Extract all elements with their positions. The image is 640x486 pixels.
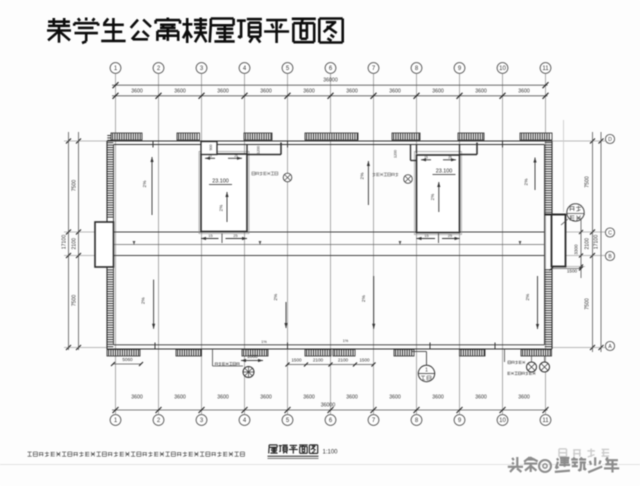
svg-text:25: 25 (448, 234, 452, 238)
svg-text:3600: 3600 (303, 395, 315, 401)
svg-text:1500: 1500 (567, 269, 578, 274)
svg-text:1:100: 1:100 (323, 450, 339, 456)
svg-text:2%: 2% (525, 293, 531, 301)
svg-text:3600: 3600 (217, 395, 229, 401)
svg-text:2%: 2% (430, 194, 435, 201)
svg-text:D: D (608, 137, 612, 143)
svg-text:23.100: 23.100 (212, 179, 229, 185)
svg-text:3600: 3600 (174, 395, 186, 401)
svg-text:15: 15 (208, 154, 212, 158)
svg-text:3600: 3600 (217, 89, 229, 95)
svg-text:3600: 3600 (389, 395, 401, 401)
svg-text:17100: 17100 (62, 235, 68, 250)
svg-text:3600: 3600 (346, 395, 358, 401)
svg-text:15: 15 (424, 156, 428, 160)
svg-text:2100: 2100 (313, 358, 324, 363)
svg-text:2%: 2% (360, 172, 366, 180)
svg-text:2%: 2% (524, 178, 530, 186)
svg-text:1%: 1% (343, 339, 349, 343)
svg-text:7500: 7500 (585, 176, 591, 188)
svg-text:1: 1 (425, 368, 428, 374)
svg-text:1%: 1% (261, 340, 267, 344)
svg-text:C: C (608, 230, 612, 236)
svg-text:1200: 1200 (394, 150, 398, 158)
svg-text:2000: 2000 (247, 354, 258, 359)
svg-text:3600: 3600 (432, 89, 444, 95)
svg-text:2%: 2% (141, 297, 147, 305)
svg-text:7500: 7500 (72, 295, 78, 307)
svg-text:3600: 3600 (389, 89, 401, 95)
svg-text:3300: 3300 (574, 244, 579, 255)
svg-text:25: 25 (233, 234, 237, 238)
svg-text:900: 900 (209, 145, 213, 151)
svg-text:15: 15 (424, 234, 428, 238)
svg-text:2100: 2100 (585, 238, 591, 250)
svg-text:15: 15 (208, 234, 212, 238)
svg-text:3600: 3600 (432, 395, 444, 401)
svg-text:2%: 2% (219, 205, 224, 212)
svg-text:17100: 17100 (594, 235, 600, 250)
svg-text:2100: 2100 (72, 238, 78, 250)
svg-text:2%: 2% (273, 293, 279, 301)
svg-text:11: 11 (542, 418, 549, 424)
svg-text:1500: 1500 (359, 358, 370, 363)
svg-text:3600: 3600 (303, 89, 315, 95)
svg-text:11: 11 (542, 66, 549, 72)
svg-text:7500: 7500 (72, 180, 78, 192)
svg-text:3600: 3600 (475, 89, 487, 95)
svg-text:25: 25 (234, 154, 238, 158)
svg-text:10: 10 (499, 418, 506, 424)
svg-text:7500: 7500 (585, 298, 591, 310)
svg-text:2%: 2% (142, 180, 148, 188)
svg-text:3600: 3600 (174, 89, 186, 95)
svg-text:10: 10 (499, 66, 506, 72)
svg-text:3600: 3600 (260, 89, 272, 95)
svg-text:5060: 5060 (122, 357, 133, 362)
svg-text:36000: 36000 (321, 403, 336, 409)
svg-text:3600: 3600 (131, 89, 143, 95)
svg-text:23.100: 23.100 (436, 169, 453, 175)
svg-text:3600: 3600 (260, 395, 272, 401)
svg-text:1200: 1200 (257, 146, 261, 154)
svg-text:3600: 3600 (346, 89, 358, 95)
svg-text:25: 25 (448, 156, 452, 160)
svg-text:36000: 36000 (323, 78, 338, 84)
svg-text:3600: 3600 (518, 89, 530, 95)
svg-text:3600: 3600 (131, 395, 143, 401)
svg-text:1500: 1500 (291, 358, 302, 363)
svg-text:2100: 2100 (338, 358, 349, 363)
svg-text:3600: 3600 (518, 395, 530, 401)
svg-text:3600: 3600 (475, 395, 487, 401)
svg-text:2%: 2% (361, 294, 367, 302)
